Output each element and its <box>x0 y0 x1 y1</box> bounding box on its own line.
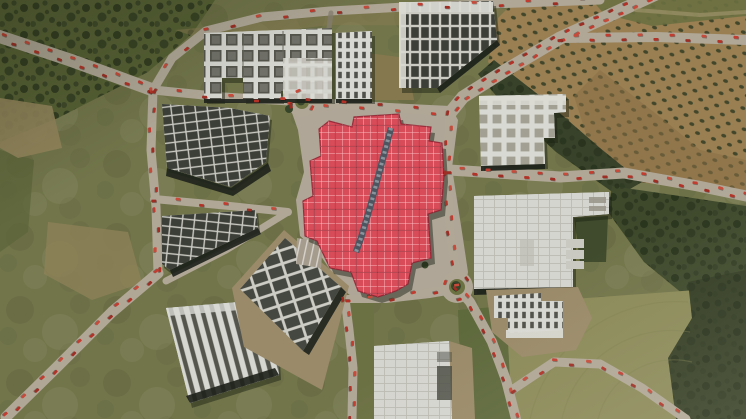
aerial-scene-svg <box>0 0 746 419</box>
tint-bottom-right <box>0 0 746 419</box>
aerial-site-view <box>0 0 746 419</box>
